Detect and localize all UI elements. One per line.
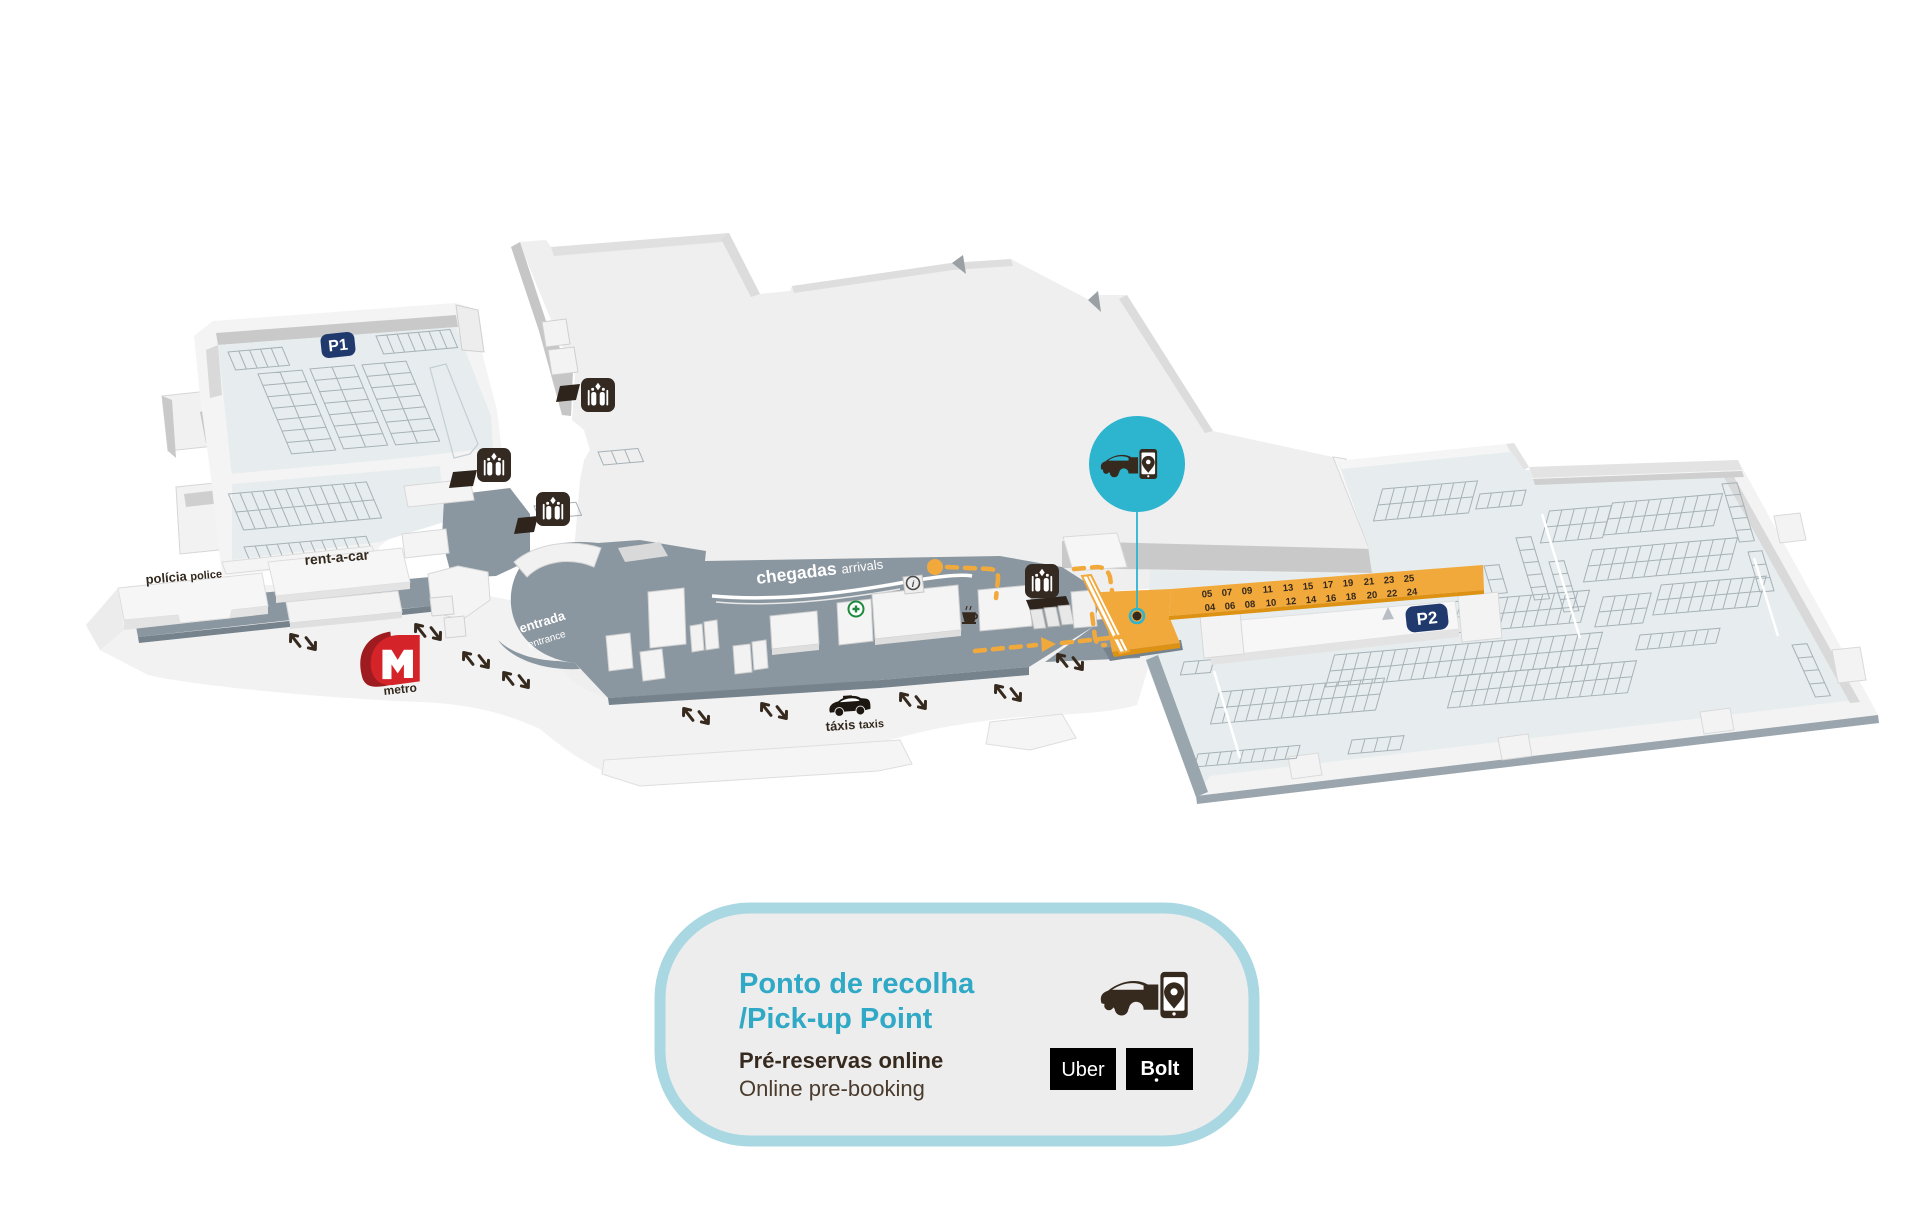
svg-text:19: 19	[1342, 578, 1353, 590]
svg-text:14: 14	[1305, 594, 1317, 606]
svg-text:25: 25	[1403, 573, 1415, 585]
svg-text:23: 23	[1383, 575, 1394, 587]
svg-text:/Pick-up Point: /Pick-up Point	[739, 1003, 933, 1035]
svg-text:11: 11	[1262, 584, 1274, 596]
svg-text:17: 17	[1322, 579, 1333, 591]
svg-text:05: 05	[1201, 589, 1213, 601]
svg-text:Uber: Uber	[1061, 1059, 1105, 1081]
svg-text:22: 22	[1386, 588, 1397, 600]
svg-text:09: 09	[1241, 586, 1252, 598]
svg-text:06: 06	[1224, 601, 1235, 613]
svg-text:24: 24	[1406, 587, 1418, 599]
svg-text:P1: P1	[327, 337, 348, 356]
svg-text:08: 08	[1244, 599, 1255, 611]
svg-text:12: 12	[1285, 596, 1296, 608]
svg-text:P2: P2	[1416, 608, 1439, 629]
svg-text:10: 10	[1265, 598, 1276, 610]
svg-text:Pré-reservas online: Pré-reservas online	[739, 1048, 943, 1073]
svg-text:04: 04	[1204, 602, 1216, 614]
svg-text:16: 16	[1325, 593, 1336, 605]
svg-text:20: 20	[1366, 590, 1377, 602]
svg-text:13: 13	[1282, 582, 1293, 594]
svg-text:Ponto de recolha: Ponto de recolha	[739, 968, 975, 1000]
svg-text:07: 07	[1221, 587, 1232, 599]
svg-text:15: 15	[1302, 581, 1314, 593]
svg-text:18: 18	[1345, 591, 1356, 603]
svg-text:Bolt: Bolt	[1141, 1058, 1180, 1080]
svg-text:Online pre-booking: Online pre-booking	[739, 1076, 925, 1101]
svg-text:21: 21	[1363, 576, 1375, 588]
